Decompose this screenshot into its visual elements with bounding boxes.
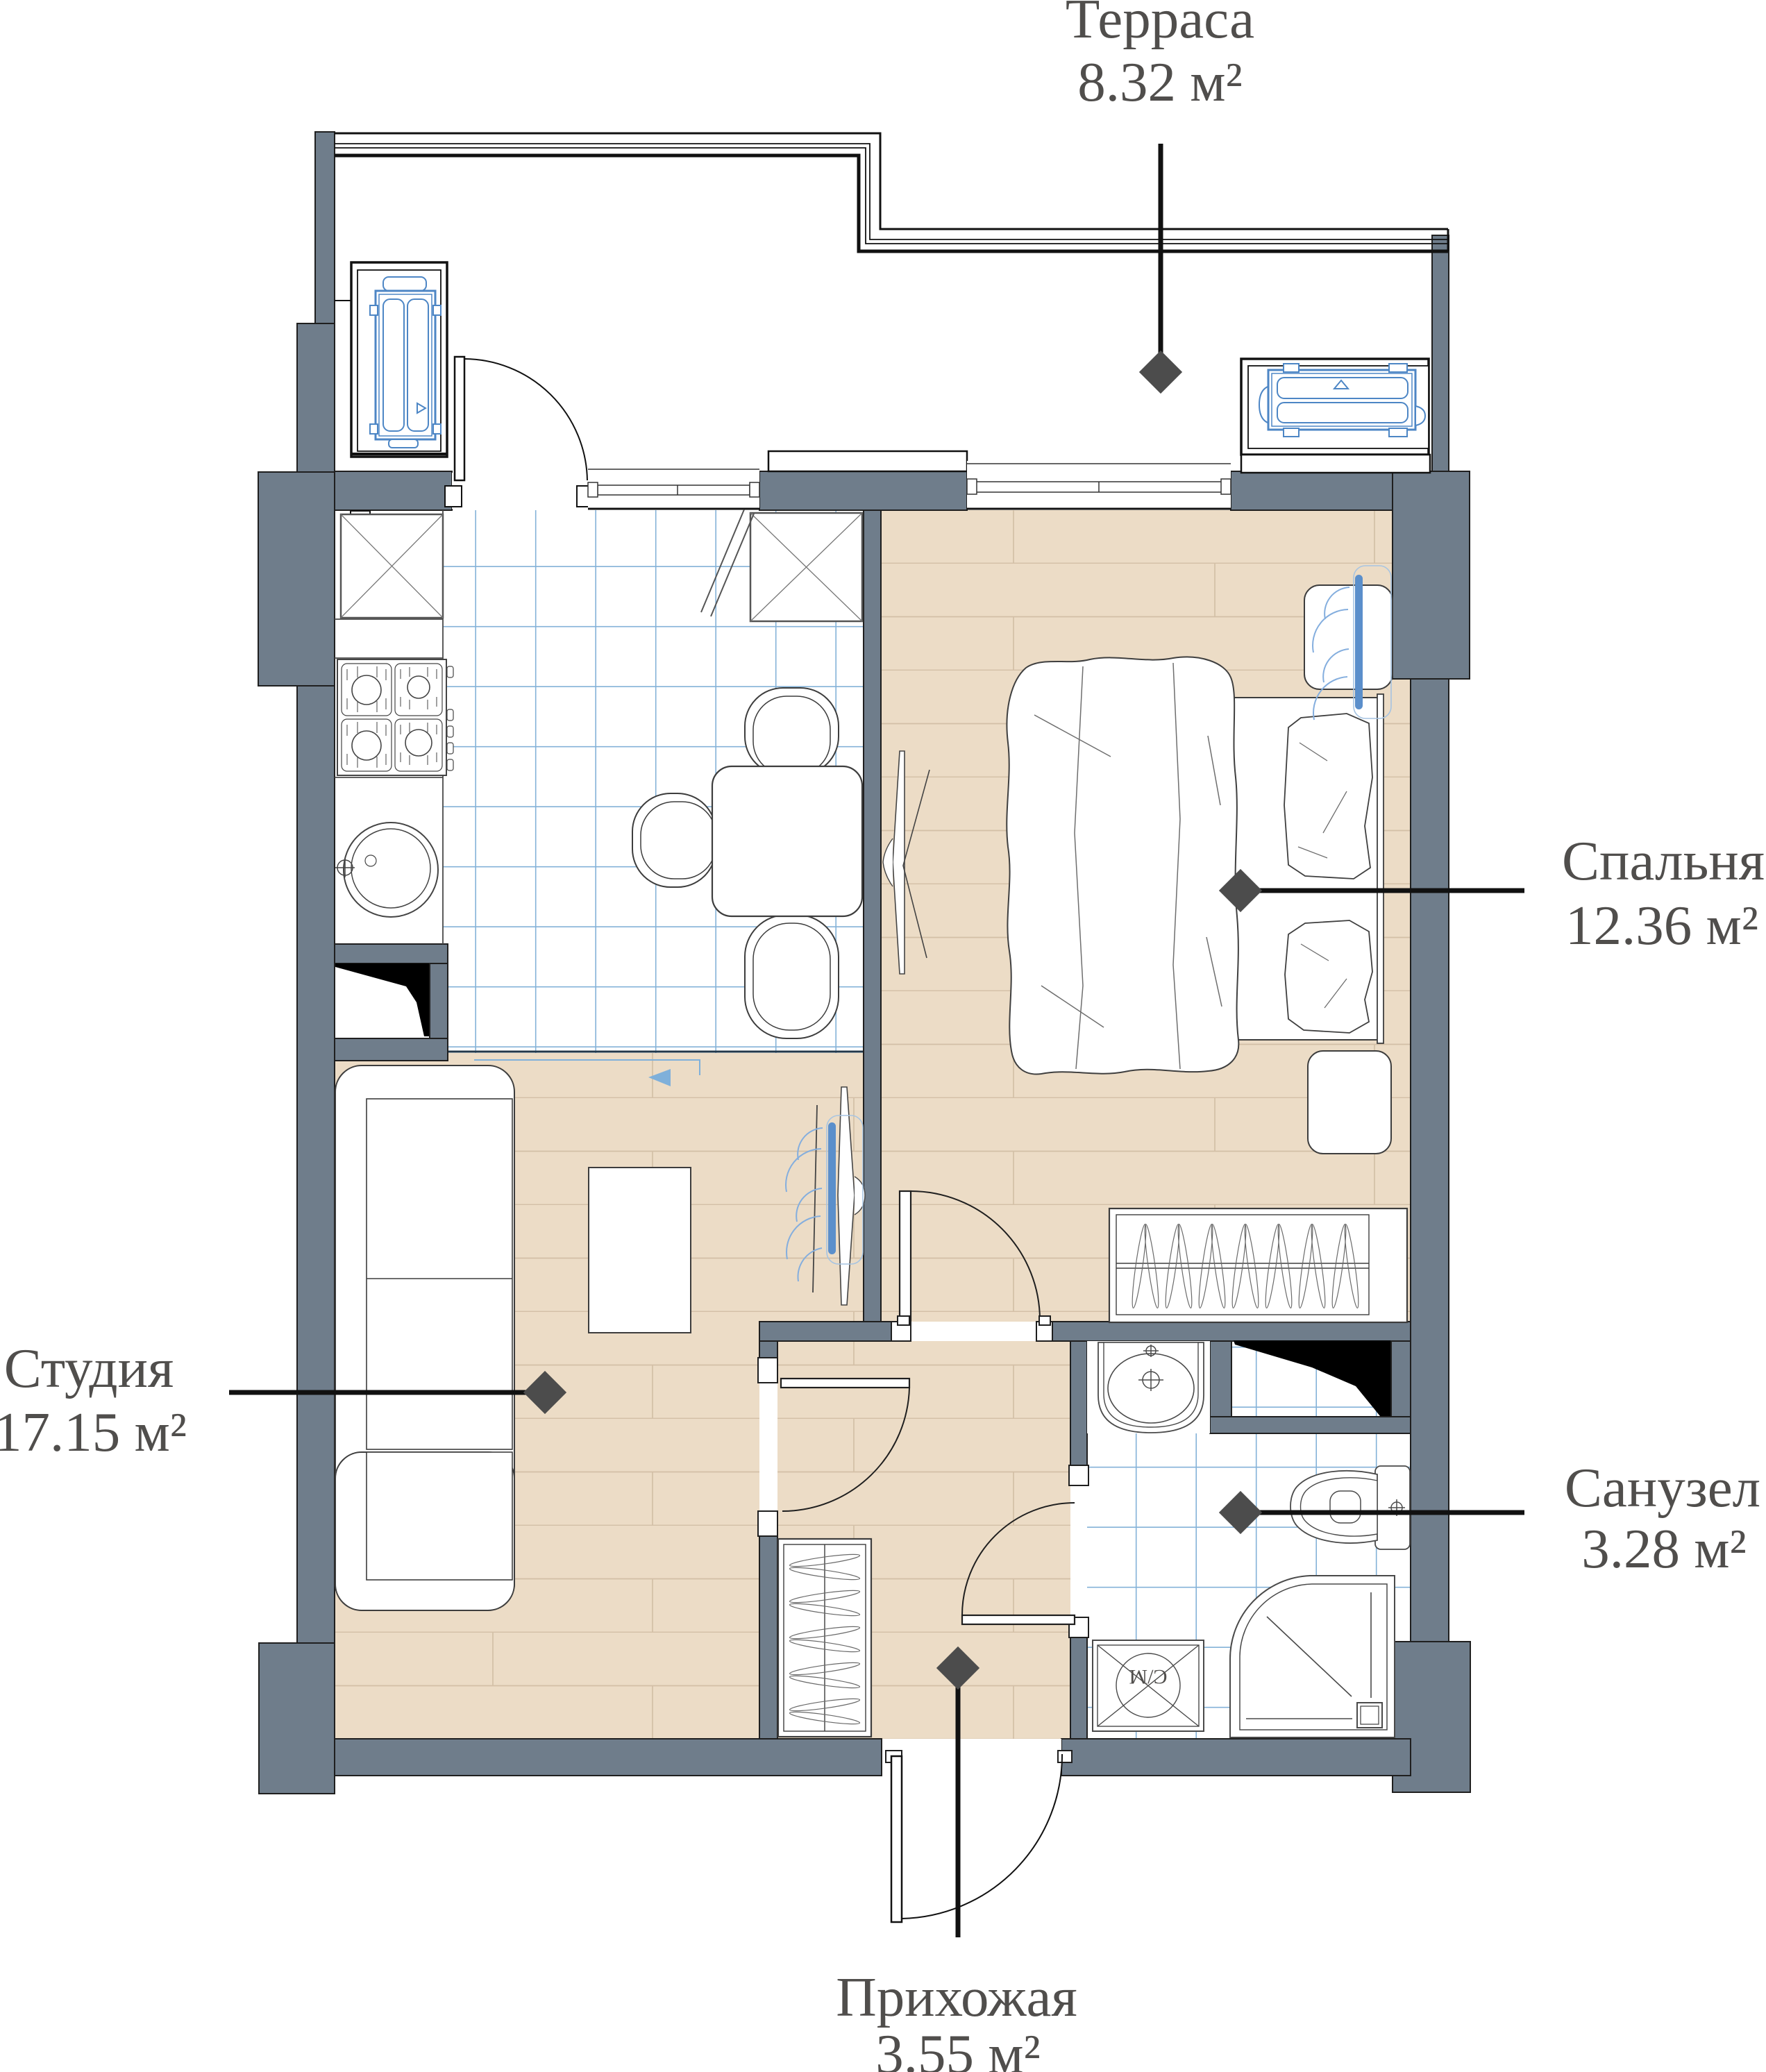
- svg-text:Терраса: Терраса: [1066, 0, 1254, 50]
- svg-text:Спальня: Спальня: [1562, 829, 1765, 892]
- svg-text:12.36 м²: 12.36 м²: [1565, 894, 1758, 957]
- svg-text:Студия: Студия: [4, 1337, 174, 1399]
- svg-text:Санузел: Санузел: [1565, 1456, 1760, 1519]
- svg-text:3.55 м²: 3.55 м²: [875, 2023, 1041, 2072]
- svg-text:17.15 м²: 17.15 м²: [0, 1401, 187, 1463]
- svg-text:3.28 м²: 3.28 м²: [1581, 1517, 1747, 1580]
- svg-text:С/М: С/М: [1129, 1665, 1167, 1688]
- svg-text:Прихожая: Прихожая: [836, 1966, 1077, 2028]
- svg-text:8.32 м²: 8.32 м²: [1077, 51, 1243, 113]
